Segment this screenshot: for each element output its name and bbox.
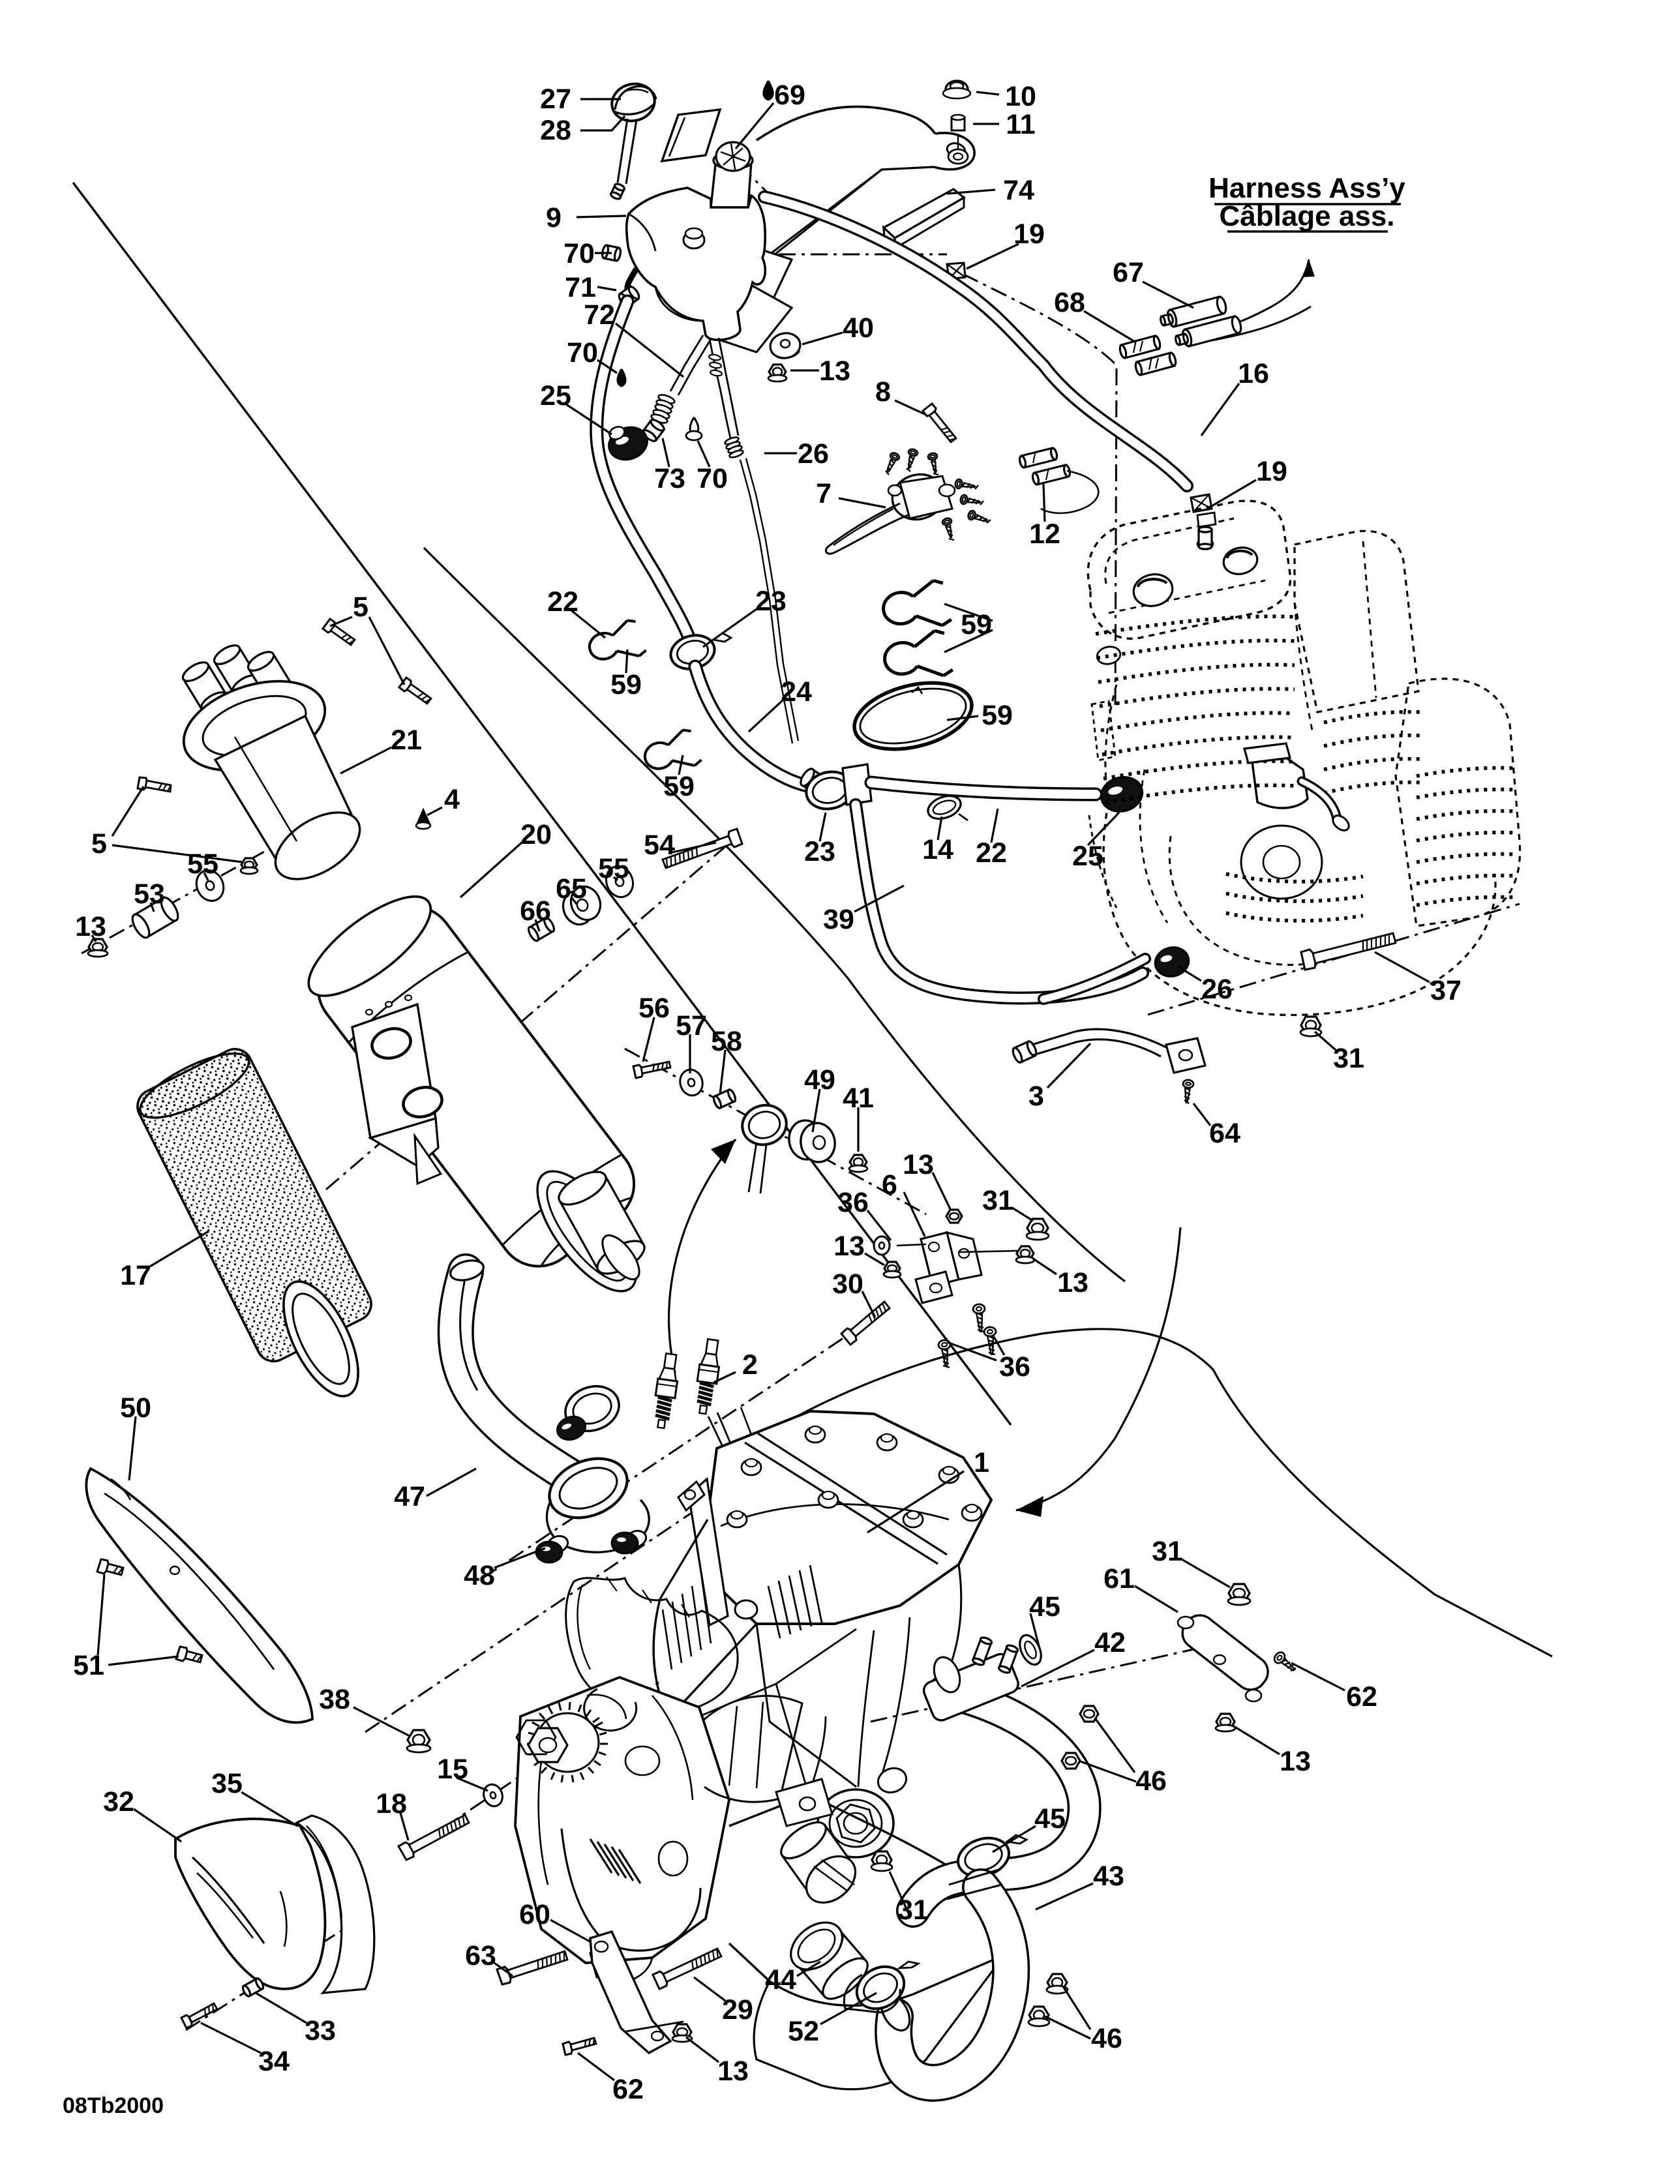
svg-text:40: 40	[843, 312, 874, 344]
svg-text:13: 13	[75, 911, 106, 942]
svg-text:26: 26	[798, 438, 829, 470]
svg-text:16: 16	[1238, 358, 1269, 389]
svg-text:61: 61	[1103, 1563, 1135, 1594]
svg-text:24: 24	[781, 676, 812, 708]
svg-text:4: 4	[444, 784, 460, 815]
svg-text:59: 59	[961, 609, 992, 640]
svg-text:36: 36	[999, 1351, 1030, 1383]
svg-text:10: 10	[1005, 81, 1036, 112]
svg-text:7: 7	[816, 478, 832, 509]
svg-text:70: 70	[563, 238, 595, 269]
svg-text:52: 52	[788, 2016, 819, 2047]
svg-text:13: 13	[819, 355, 850, 387]
svg-text:36: 36	[837, 1187, 869, 1218]
svg-text:63: 63	[465, 1940, 496, 1971]
svg-text:47: 47	[394, 1481, 425, 1512]
svg-text:12: 12	[1029, 518, 1060, 550]
svg-text:51: 51	[73, 1650, 104, 1681]
svg-text:59: 59	[663, 771, 695, 802]
svg-text:73: 73	[654, 463, 685, 494]
svg-text:42: 42	[1094, 1627, 1126, 1658]
svg-text:71: 71	[565, 272, 596, 303]
svg-text:72: 72	[584, 299, 615, 331]
svg-text:48: 48	[464, 1560, 495, 1591]
svg-text:34: 34	[258, 2046, 290, 2077]
svg-text:26: 26	[1201, 974, 1233, 1005]
svg-text:21: 21	[391, 725, 422, 756]
svg-text:08Tb2000: 08Tb2000	[63, 2093, 164, 2118]
svg-text:25: 25	[540, 380, 571, 411]
svg-text:45: 45	[1029, 1591, 1060, 1623]
svg-text:44: 44	[765, 1964, 796, 1996]
svg-text:68: 68	[1054, 287, 1085, 318]
svg-text:39: 39	[823, 904, 854, 935]
svg-text:65: 65	[556, 873, 587, 905]
svg-text:5: 5	[91, 828, 107, 860]
svg-text:54: 54	[644, 830, 675, 861]
svg-text:13: 13	[903, 1149, 934, 1180]
svg-text:20: 20	[520, 819, 552, 850]
svg-text:38: 38	[319, 1684, 350, 1715]
svg-text:23: 23	[755, 586, 787, 617]
svg-text:59: 59	[610, 669, 642, 700]
svg-text:62: 62	[1346, 1681, 1377, 1713]
svg-text:53: 53	[134, 878, 165, 910]
svg-text:74: 74	[1003, 175, 1034, 206]
svg-text:69: 69	[774, 80, 805, 111]
svg-text:32: 32	[103, 1786, 134, 1818]
svg-text:29: 29	[722, 1994, 753, 2026]
svg-text:6: 6	[882, 1169, 897, 1201]
svg-text:43: 43	[1093, 1861, 1124, 1892]
svg-text:58: 58	[711, 1026, 742, 1057]
svg-text:70: 70	[567, 337, 598, 368]
svg-text:13: 13	[1057, 1267, 1088, 1298]
svg-text:62: 62	[612, 2074, 644, 2105]
svg-text:5: 5	[353, 591, 368, 623]
svg-text:37: 37	[1430, 975, 1462, 1006]
svg-text:19: 19	[1256, 456, 1287, 487]
svg-text:45: 45	[1034, 1803, 1066, 1834]
svg-text:46: 46	[1091, 2023, 1122, 2054]
svg-text:Harness Ass’y: Harness Ass’y	[1208, 172, 1405, 204]
svg-text:55: 55	[598, 853, 629, 884]
svg-text:28: 28	[540, 115, 571, 146]
svg-text:11: 11	[1006, 109, 1035, 140]
svg-text:31: 31	[1152, 1536, 1183, 1567]
svg-text:13: 13	[717, 2056, 749, 2087]
svg-text:31: 31	[982, 1185, 1013, 1216]
svg-text:9: 9	[546, 202, 562, 233]
svg-text:46: 46	[1135, 1765, 1167, 1797]
svg-text:27: 27	[540, 83, 571, 115]
svg-text:13: 13	[833, 1231, 865, 1262]
svg-text:64: 64	[1209, 1118, 1240, 1149]
svg-text:59: 59	[982, 700, 1013, 731]
svg-text:55: 55	[187, 848, 218, 880]
svg-text:3: 3	[1028, 1081, 1044, 1112]
svg-text:67: 67	[1113, 257, 1144, 288]
svg-text:70: 70	[697, 463, 728, 494]
svg-text:30: 30	[832, 1268, 863, 1300]
svg-text:17: 17	[120, 1260, 151, 1291]
svg-text:18: 18	[376, 1788, 407, 1819]
svg-text:1: 1	[974, 1447, 989, 1478]
svg-text:2: 2	[742, 1349, 758, 1381]
svg-text:60: 60	[519, 1899, 550, 1930]
svg-text:8: 8	[875, 376, 891, 408]
svg-text:13: 13	[1280, 1746, 1311, 1777]
svg-text:35: 35	[211, 1768, 243, 1799]
svg-text:31: 31	[1333, 1043, 1364, 1074]
svg-text:57: 57	[676, 1010, 707, 1041]
svg-text:33: 33	[305, 2015, 336, 2046]
svg-text:25: 25	[1072, 841, 1103, 872]
